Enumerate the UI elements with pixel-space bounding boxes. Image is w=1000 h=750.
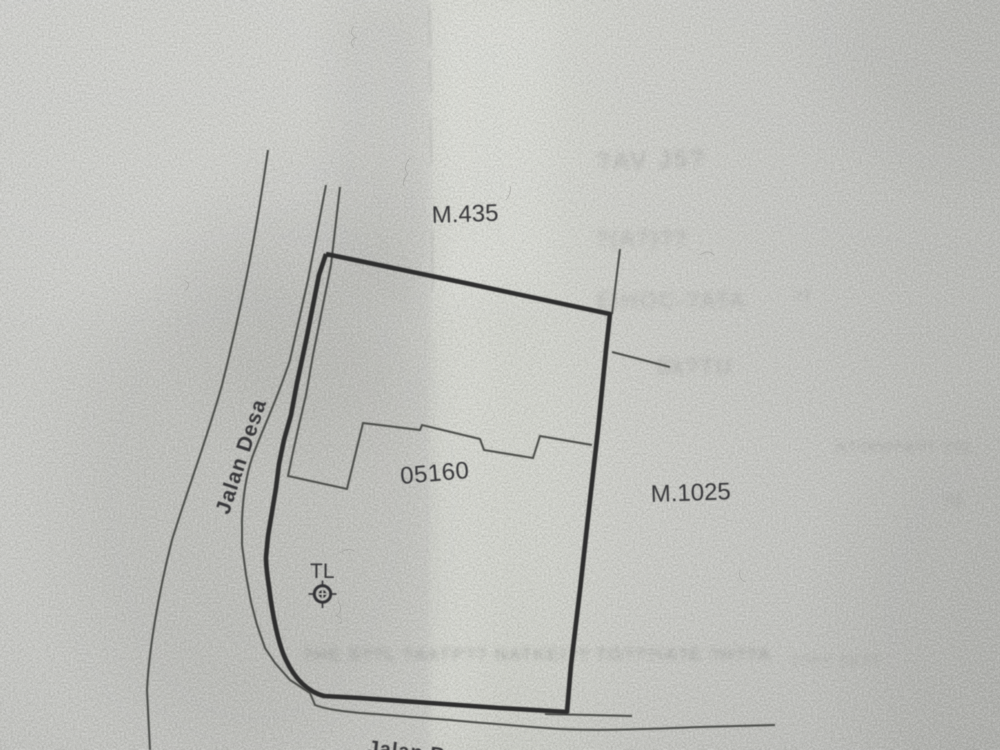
svg-text:M.1025: M.1025: [650, 478, 731, 508]
svg-text:??T? ?A??: ??T? ?A??: [790, 653, 881, 670]
svg-text:?(A?)??: ?(A?)??: [596, 226, 688, 251]
svg-text:EIHOC-?ATA: EIHOC-?ATA: [597, 288, 746, 313]
svg-text:>?: >?: [795, 287, 811, 303]
svg-text:?1: ?1: [944, 492, 965, 509]
svg-text:?HE S??L ?AATP?? NATKEI?? TO??: ?HE S??L ?AATP?? NATKEI?? TO???IA?E ?H??…: [303, 645, 772, 664]
svg-text:TL: TL: [310, 560, 335, 583]
svg-text:?AV J5?: ?AV J5?: [596, 145, 707, 176]
svg-text:M.435: M.435: [431, 200, 499, 229]
svg-text:A??PH?A?? ??L: A??PH?A?? ??L: [836, 439, 974, 456]
